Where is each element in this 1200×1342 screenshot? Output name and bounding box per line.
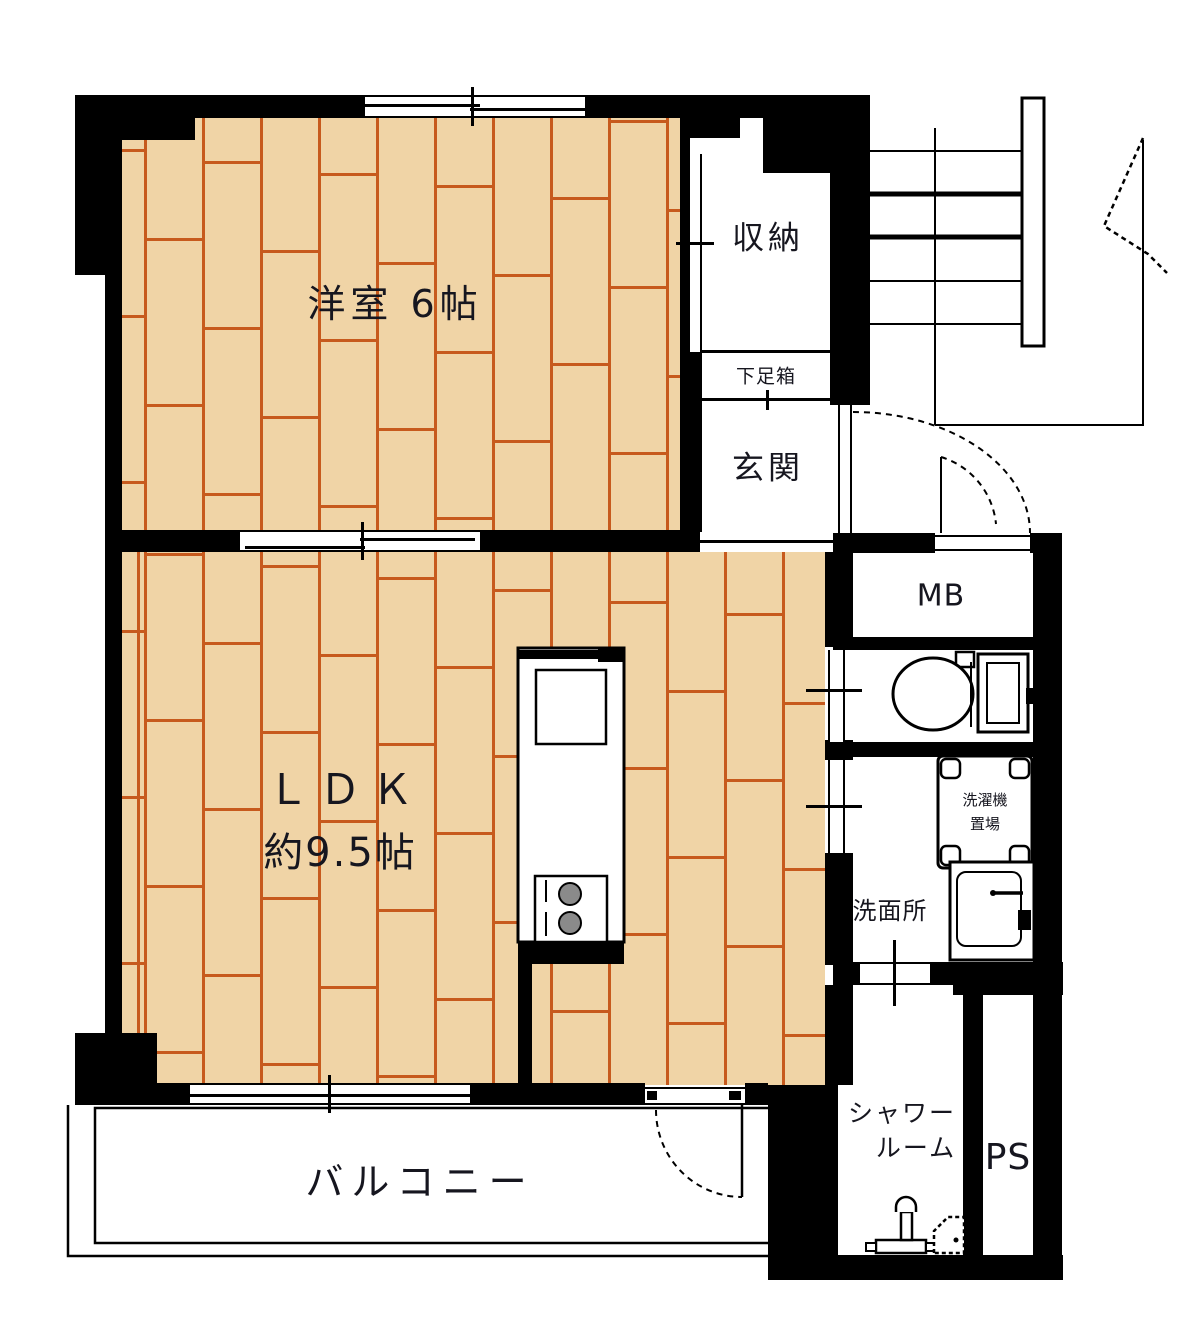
sliding-window-icon bbox=[365, 95, 585, 118]
sliding-door-icon bbox=[240, 530, 480, 552]
plank-joint bbox=[379, 1075, 434, 1078]
plank-joint bbox=[321, 339, 376, 342]
plank-joint bbox=[727, 945, 782, 948]
plank-joint bbox=[122, 796, 144, 799]
plank-joint bbox=[553, 844, 608, 847]
plank-joint bbox=[321, 505, 376, 508]
wall-segment bbox=[157, 1083, 190, 1105]
plank-joint bbox=[147, 553, 202, 556]
plank-joint bbox=[147, 404, 202, 407]
plank-joint bbox=[611, 601, 666, 604]
wall-segment bbox=[825, 985, 853, 1085]
balcony-label: バルコニー bbox=[305, 1162, 534, 1204]
plank-joint bbox=[553, 678, 608, 681]
plank-joint bbox=[553, 363, 608, 366]
plank-joint bbox=[611, 286, 666, 289]
plank-joint bbox=[785, 868, 825, 871]
window-tick bbox=[328, 1075, 331, 1113]
pipe-space-label: PS bbox=[985, 1138, 1032, 1178]
washroom-room bbox=[853, 757, 1033, 962]
plank-joint bbox=[321, 173, 376, 176]
pipe-space-room bbox=[983, 995, 1033, 1255]
plank-joint bbox=[147, 238, 202, 241]
western-room-label: 洋室 6帖 bbox=[307, 284, 482, 326]
wall-segment bbox=[833, 533, 935, 553]
opening-tick bbox=[766, 390, 769, 410]
wall-segment bbox=[768, 1255, 1063, 1280]
plank-joint bbox=[553, 1010, 608, 1013]
stair-break-arrow-icon bbox=[1104, 138, 1167, 273]
plank-joint bbox=[611, 767, 666, 770]
kitchen-base-wall bbox=[518, 940, 624, 964]
washer-place-label-1: 洗濯機 bbox=[962, 792, 1007, 809]
toilet-room bbox=[853, 650, 1033, 742]
wall-segment bbox=[120, 95, 365, 118]
plank-joint bbox=[263, 565, 318, 568]
plank-joint bbox=[611, 120, 666, 123]
wall-segment bbox=[1033, 545, 1062, 1280]
plank-joint bbox=[669, 1022, 724, 1025]
plank-joint bbox=[553, 197, 608, 200]
plank-joint bbox=[263, 1063, 318, 1066]
plank-joint bbox=[147, 885, 202, 888]
meter-box-door bbox=[935, 535, 1030, 551]
plank-joint bbox=[122, 149, 144, 152]
meter-box-label: MB bbox=[917, 580, 965, 613]
plank-joint bbox=[495, 440, 550, 443]
plank-joint bbox=[437, 517, 492, 520]
wall-segment bbox=[105, 275, 122, 1033]
kitchen-stub-wall bbox=[518, 964, 532, 1085]
wall-segment bbox=[768, 1085, 838, 1275]
wall-segment bbox=[470, 1083, 645, 1105]
plank-joint bbox=[379, 743, 434, 746]
plank-joint bbox=[205, 161, 260, 164]
wall-segment bbox=[833, 962, 860, 985]
plank-joint bbox=[669, 856, 724, 859]
shoe-box-line bbox=[702, 350, 830, 353]
wall-segment bbox=[963, 985, 983, 1255]
door-tick bbox=[893, 940, 896, 1006]
balcony-door-frame bbox=[645, 1087, 745, 1105]
wall-segment bbox=[680, 118, 690, 154]
plank-joint bbox=[669, 690, 724, 693]
shoe-box-label: 下足箱 bbox=[736, 367, 796, 388]
closet-door bbox=[688, 154, 702, 352]
wall-segment bbox=[585, 95, 847, 118]
plank-joint bbox=[321, 820, 376, 823]
wall-segment bbox=[825, 853, 853, 965]
closet-label: 収納 bbox=[732, 220, 804, 255]
plank-joint bbox=[437, 998, 492, 1001]
door-tick bbox=[806, 689, 862, 692]
plank-joint bbox=[437, 185, 492, 188]
ldk-label: ＬＤＫ bbox=[267, 767, 423, 813]
wall-segment bbox=[833, 742, 1062, 757]
door-tick bbox=[361, 522, 364, 560]
wall-segment bbox=[75, 95, 122, 275]
window-tick bbox=[471, 87, 474, 126]
plank-joint bbox=[727, 779, 782, 782]
plank-joint bbox=[495, 755, 550, 758]
staircase-icon bbox=[868, 98, 1143, 425]
plank-joint bbox=[263, 416, 318, 419]
plank-joint bbox=[122, 962, 144, 965]
shower-room-upper bbox=[853, 985, 963, 1085]
wall-segment bbox=[763, 118, 833, 173]
plank-joint bbox=[263, 897, 318, 900]
plank-joint bbox=[379, 577, 434, 580]
plank-joint bbox=[205, 642, 260, 645]
plank-joint bbox=[495, 921, 550, 924]
wall-segment bbox=[830, 95, 870, 405]
plank-joint bbox=[263, 250, 318, 253]
wall-segment bbox=[680, 352, 702, 532]
plank-joint bbox=[205, 974, 260, 977]
plank-joint bbox=[263, 731, 318, 734]
plank-joint bbox=[495, 589, 550, 592]
plank-joint bbox=[122, 315, 144, 318]
entry-door-swing-icon bbox=[853, 412, 1030, 533]
plank-joint bbox=[122, 481, 144, 484]
washroom-label: 洗面所 bbox=[853, 898, 928, 924]
plank-joint bbox=[379, 262, 434, 265]
wall-segment bbox=[75, 1033, 157, 1105]
entry-door-leaf bbox=[838, 405, 852, 533]
plank-joint bbox=[611, 933, 666, 936]
plank-joint bbox=[205, 493, 260, 496]
wall-segment bbox=[480, 530, 700, 552]
plank-joint bbox=[379, 428, 434, 431]
ldk-floor bbox=[122, 552, 825, 1085]
wall-segment bbox=[680, 154, 688, 352]
plank-joint bbox=[495, 274, 550, 277]
plank-joint bbox=[437, 351, 492, 354]
wall-segment bbox=[105, 530, 240, 552]
entrance-label: 玄関 bbox=[732, 450, 804, 485]
wall-segment bbox=[833, 637, 1062, 650]
shower-room-label-2: ルーム bbox=[876, 1134, 956, 1162]
plank-joint bbox=[205, 327, 260, 330]
plank-joint bbox=[205, 808, 260, 811]
plank-joint bbox=[321, 654, 376, 657]
floor-plan: 洋室 6帖 ＬＤＫ 約9.5帖 収納 下足箱 玄関 MB 洗濯機 置場 洗面所 … bbox=[0, 0, 1200, 1342]
plank-joint bbox=[727, 613, 782, 616]
plank-joint bbox=[785, 1034, 825, 1037]
plank-joint bbox=[122, 630, 144, 633]
toilet-door bbox=[828, 650, 845, 742]
plank-joint bbox=[611, 452, 666, 455]
wall-segment bbox=[825, 545, 853, 647]
plank-joint bbox=[147, 719, 202, 722]
wall-segment bbox=[745, 1083, 768, 1105]
plank-joint bbox=[437, 832, 492, 835]
door-tick bbox=[806, 805, 862, 808]
plank-joint bbox=[321, 986, 376, 989]
entry-step-line bbox=[700, 532, 833, 552]
plank-joint bbox=[785, 702, 825, 705]
washer-place-label-2: 置場 bbox=[970, 816, 1000, 833]
shower-room-label-1: シャワー bbox=[848, 1099, 956, 1127]
plank-joint bbox=[379, 909, 434, 912]
plank-joint bbox=[669, 209, 680, 212]
plank-joint bbox=[437, 666, 492, 669]
plank-joint bbox=[669, 375, 680, 378]
door-tick bbox=[676, 242, 714, 245]
ldk-size-label: 約9.5帖 bbox=[263, 831, 417, 875]
